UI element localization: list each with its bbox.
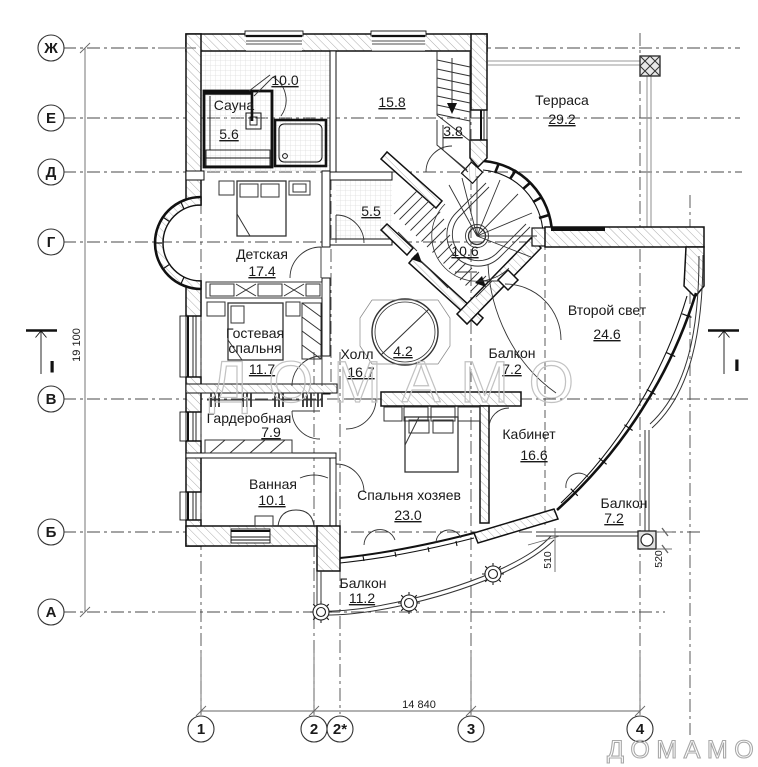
svg-text:16.6: 16.6 xyxy=(520,447,547,463)
svg-text:520: 520 xyxy=(653,550,665,568)
svg-text:10.1: 10.1 xyxy=(258,492,285,508)
svg-text:А: А xyxy=(46,604,57,621)
svg-text:ДОМАМО: ДОМАМО xyxy=(607,736,758,764)
svg-text:2: 2 xyxy=(310,721,318,738)
svg-text:Балкон: Балкон xyxy=(601,495,648,511)
svg-text:Второй свет: Второй свет xyxy=(568,302,647,318)
svg-text:Е: Е xyxy=(46,110,56,127)
svg-text:29.2: 29.2 xyxy=(548,111,575,127)
svg-text:510: 510 xyxy=(542,551,554,569)
svg-text:14 840: 14 840 xyxy=(402,699,436,711)
svg-text:3: 3 xyxy=(467,721,475,738)
svg-text:ДОМАМО: ДОМАМО xyxy=(209,350,594,415)
svg-text:Спальня хозяев: Спальня хозяев xyxy=(357,487,461,503)
svg-text:Сауна: Сауна xyxy=(214,97,255,113)
svg-text:Ж: Ж xyxy=(43,40,58,57)
svg-text:Д: Д xyxy=(46,164,57,181)
svg-text:Терраса: Терраса xyxy=(535,92,589,108)
svg-text:Г: Г xyxy=(47,234,56,251)
svg-text:Детская: Детская xyxy=(236,246,288,262)
svg-text:19 100: 19 100 xyxy=(71,328,83,362)
svg-text:5.6: 5.6 xyxy=(219,126,239,142)
svg-text:11.2: 11.2 xyxy=(349,590,375,606)
svg-text:Ванная: Ванная xyxy=(249,476,297,492)
svg-text:1: 1 xyxy=(197,721,205,738)
svg-text:3.8: 3.8 xyxy=(443,123,463,139)
svg-text:Гостевая: Гостевая xyxy=(226,325,284,341)
svg-text:7.2: 7.2 xyxy=(604,510,624,526)
svg-text:Балкон: Балкон xyxy=(340,575,387,591)
svg-text:Кабинет: Кабинет xyxy=(502,426,556,442)
svg-text:В: В xyxy=(46,391,57,408)
svg-text:Б: Б xyxy=(46,524,57,541)
svg-text:7.9: 7.9 xyxy=(261,424,281,440)
svg-text:23.0: 23.0 xyxy=(394,507,421,523)
svg-text:5.5: 5.5 xyxy=(361,203,381,219)
svg-text:10.0: 10.0 xyxy=(271,72,298,88)
svg-text:10.6: 10.6 xyxy=(451,243,478,259)
svg-text:2*: 2* xyxy=(333,721,347,738)
svg-text:17.4: 17.4 xyxy=(248,263,275,279)
svg-text:24.6: 24.6 xyxy=(593,326,620,342)
svg-text:15.8: 15.8 xyxy=(378,94,405,110)
